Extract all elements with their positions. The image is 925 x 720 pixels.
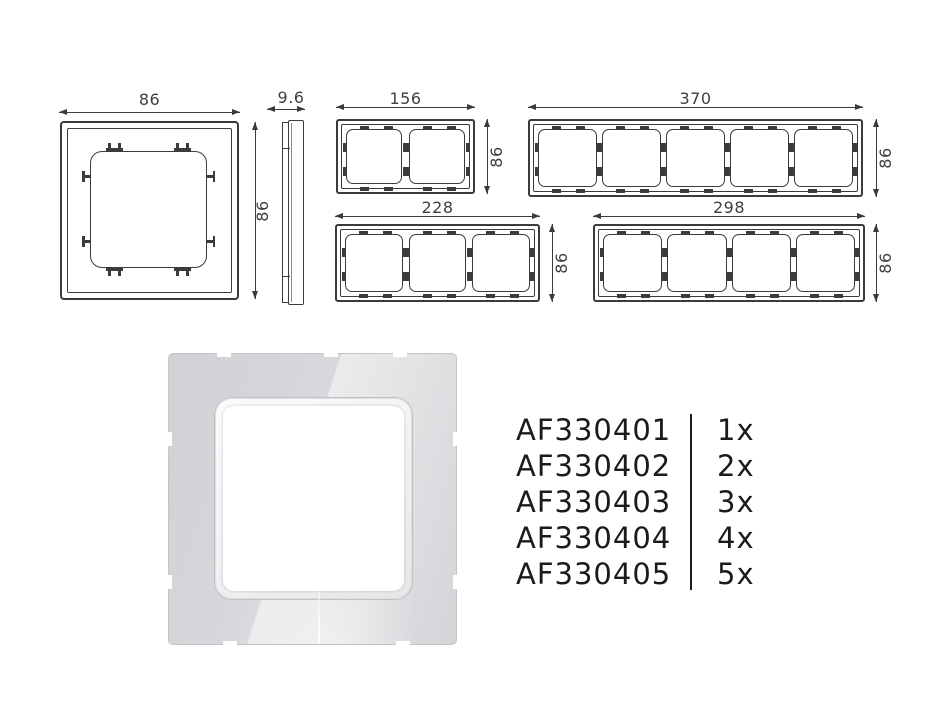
product-row: AF330403 3x — [516, 484, 772, 520]
drawing-1gang-frame-front — [60, 121, 239, 300]
dim-height-3gang: 86 — [554, 248, 570, 278]
product-qty: 4x — [717, 520, 755, 556]
module-opening — [346, 129, 402, 184]
dim-line-width-5gang — [528, 107, 863, 108]
dim-line-depth-profile — [267, 109, 305, 110]
clip-mark — [174, 268, 191, 276]
edge-notch — [167, 432, 172, 446]
render-reflection — [318, 563, 320, 644]
product-list: AF330401 1x AF330402 2x AF330403 3x AF33… — [516, 412, 772, 592]
profile-seam — [282, 148, 290, 149]
module-opening — [732, 234, 791, 292]
dim-height-2gang: 86 — [489, 142, 505, 172]
product-qty: 3x — [717, 484, 755, 520]
module-opening — [603, 234, 662, 292]
dim-height-1gang: 86 — [255, 196, 271, 226]
dim-width-2gang: 156 — [336, 91, 475, 107]
clip-mark — [207, 236, 215, 247]
drawing-3gang-frame — [335, 224, 540, 302]
drawing-side-profile — [282, 120, 305, 305]
frame-inner-line — [341, 124, 470, 189]
module-opening — [730, 129, 789, 187]
dim-height-4gang: 86 — [878, 248, 894, 278]
clip-mark — [106, 268, 123, 276]
dim-depth-profile: 9.6 — [269, 90, 313, 106]
dim-line-width-1gang — [59, 112, 240, 113]
product-row: AF330402 2x — [516, 448, 772, 484]
module-opening — [538, 129, 597, 187]
edge-notch — [393, 352, 407, 357]
dim-width-1gang: 86 — [59, 92, 240, 108]
product-qty: 1x — [717, 412, 755, 448]
clip-mark — [207, 171, 215, 182]
dim-height-5gang: 86 — [878, 143, 894, 173]
frame-product-render — [168, 353, 457, 645]
module-opening — [345, 234, 403, 292]
module-opening — [602, 129, 661, 187]
profile-seam — [282, 276, 290, 277]
edge-notch — [453, 432, 458, 446]
product-qty: 2x — [717, 448, 755, 484]
profile-front-plate — [288, 120, 304, 305]
module-opening — [666, 129, 725, 187]
product-qty: 5x — [717, 556, 755, 592]
dim-width-3gang: 228 — [335, 200, 540, 216]
frame-inner-line — [533, 124, 858, 192]
module-opening — [409, 129, 465, 184]
clip-mark — [106, 143, 123, 151]
product-row: AF330404 4x — [516, 520, 772, 556]
drawing-4gang-frame — [593, 224, 865, 302]
module-opening — [794, 129, 853, 187]
dim-line-width-2gang — [336, 107, 475, 108]
clip-mark — [174, 143, 191, 151]
product-spec-sheet: 86 86 9.6 156 86 370 — [0, 0, 925, 720]
list-divider-line — [690, 414, 692, 590]
module-opening — [472, 234, 530, 292]
dim-width-5gang: 370 — [528, 91, 863, 107]
edge-notch — [167, 575, 172, 589]
product-row: AF330405 5x — [516, 556, 772, 592]
dim-line-width-4gang — [593, 216, 865, 217]
dim-width-4gang: 298 — [593, 200, 865, 216]
dim-line-width-3gang — [335, 216, 540, 217]
edge-notch — [453, 575, 458, 589]
drawing-2gang-frame — [336, 119, 475, 194]
frame-inner-line — [340, 229, 535, 297]
edge-notch — [217, 352, 231, 357]
clip-mark — [82, 236, 90, 247]
module-opening — [667, 234, 726, 292]
product-sku: AF330405 — [516, 556, 671, 592]
module-opening — [90, 151, 207, 268]
frame-inner-line — [598, 229, 860, 297]
product-sku: AF330404 — [516, 520, 671, 556]
clip-mark — [82, 171, 90, 182]
edge-notch — [223, 641, 237, 646]
render-center-pane — [223, 406, 404, 591]
drawing-5gang-frame — [528, 119, 863, 197]
product-sku: AF330401 — [516, 412, 671, 448]
module-opening — [409, 234, 467, 292]
product-row: AF330401 1x — [516, 412, 772, 448]
product-sku: AF330403 — [516, 484, 671, 520]
module-opening — [796, 234, 855, 292]
product-sku: AF330402 — [516, 448, 671, 484]
edge-notch — [396, 641, 410, 646]
edge-notch — [324, 352, 338, 357]
